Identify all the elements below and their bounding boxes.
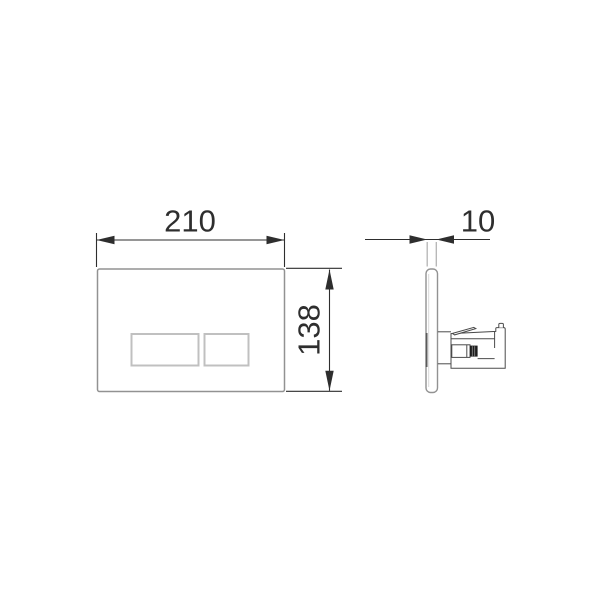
mechanism-latch-tab xyxy=(499,323,504,327)
front-plate-outline xyxy=(98,269,285,392)
width-dimension-label: 210 xyxy=(164,206,216,237)
height-arrow-up-icon xyxy=(325,270,333,290)
depth-dimension-label: 10 xyxy=(461,206,495,237)
width-arrow-right-icon xyxy=(267,236,285,244)
width-arrow-left-icon xyxy=(97,236,115,244)
depth-arrow-right-icon xyxy=(410,235,428,243)
small-flush-button xyxy=(205,334,249,366)
front-view xyxy=(98,269,285,392)
mount-mechanism xyxy=(438,323,505,368)
technical-drawing: 210 138 10 xyxy=(0,0,600,600)
drawing-svg xyxy=(0,0,600,600)
side-plate-profile xyxy=(426,269,438,393)
actuator-rod-tip xyxy=(470,346,478,357)
depth-arrow-left-icon xyxy=(436,235,454,243)
height-dimension-label: 138 xyxy=(294,304,325,356)
large-flush-button xyxy=(132,334,199,366)
side-view xyxy=(365,235,505,392)
height-arrow-down-icon xyxy=(325,371,333,391)
